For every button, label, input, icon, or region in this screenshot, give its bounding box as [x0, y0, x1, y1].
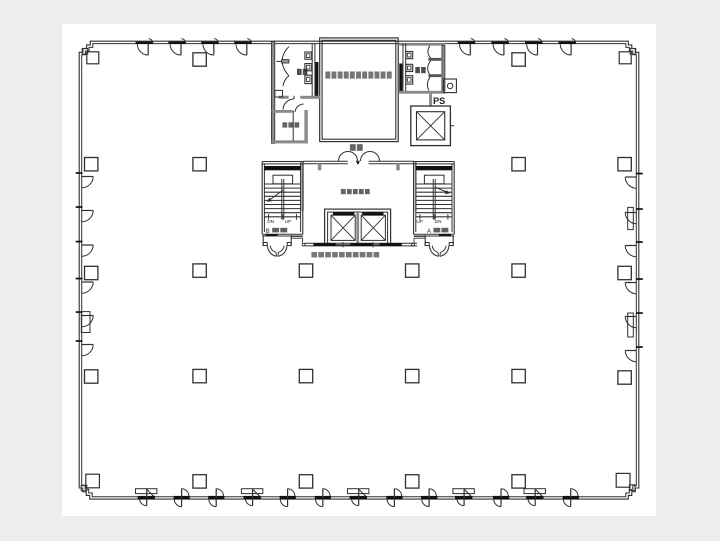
- svg-text:PS: PS: [433, 96, 445, 106]
- svg-text:UP: UP: [416, 219, 423, 224]
- svg-text:UP: UP: [285, 219, 292, 224]
- svg-text:DN: DN: [267, 219, 274, 224]
- svg-text:DN: DN: [435, 219, 442, 224]
